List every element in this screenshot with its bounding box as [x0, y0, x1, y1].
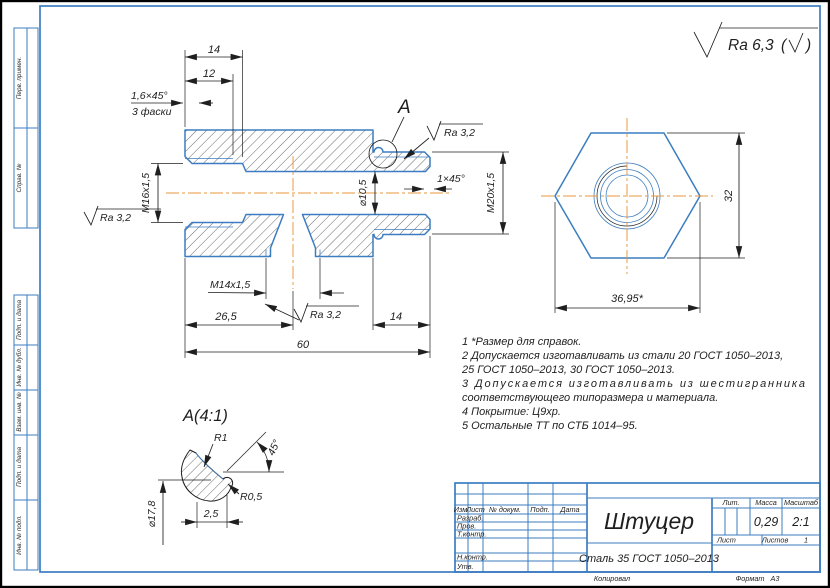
dim-chamfer-note: 3 фаски [132, 106, 172, 118]
copied-label: Копировал [594, 574, 630, 583]
roughness-value: Ra 3,2 [100, 212, 131, 224]
dim-leader [204, 444, 213, 467]
detail-hatch [181, 450, 232, 501]
hex-end-view: 36,95* 32 [541, 118, 745, 313]
roughness-check-icon [294, 303, 308, 322]
dim-angle: 45° [265, 438, 283, 457]
margin-label: Перв. примен. [16, 57, 23, 99]
col-data: Дата [559, 505, 579, 514]
section-hatch-upper [185, 130, 430, 172]
dim-across-corners: 36,95* [611, 293, 644, 305]
mass-value: 0,29 [754, 515, 778, 529]
sheet-border [1, 1, 829, 587]
drawing-sheet: Перв. примен. Справ. № Подп. и дата Инв.… [0, 0, 830, 588]
dim-total-len: 60 [297, 339, 310, 351]
detail-view-a: A(4:1) 45° R1 R0,5 2,5 ⌀17,8 [146, 407, 284, 545]
lit-label: Лит. [721, 498, 739, 507]
sheet-label: Лист [716, 536, 736, 545]
col-doc: № докум. [489, 505, 521, 514]
note-line: 4 Покрытие: Ц9хр. [462, 406, 561, 418]
margin-label: Справ. № [16, 163, 23, 192]
dim-thread-left: M16x1,5 [140, 173, 152, 213]
note-line: 3 Допускается изготавливать из шестигран… [462, 378, 805, 390]
col-podp: Подп. [530, 505, 549, 514]
roughness-check-icon [427, 121, 441, 140]
row-nkontr: Н.контр. [457, 553, 488, 562]
format-label: Формат [736, 574, 765, 583]
dim-radius-05: R0,5 [240, 491, 262, 503]
detail-callout-label: A [397, 97, 411, 118]
general-roughness-value: Ra 6,3 [728, 37, 774, 54]
dim-chamfer-right: 1×45° [437, 173, 465, 185]
sheets-label: Листов [761, 536, 789, 545]
dim-bore-dia: ⌀10,5 [357, 179, 369, 206]
dim-thread-right: M20x1,5 [485, 173, 497, 213]
margin-label: Взам. инв. № [16, 392, 23, 432]
margin-columns: Перв. примен. Справ. № Подп. и дата Инв.… [14, 28, 38, 570]
roughness-leader [265, 304, 299, 320]
roughness-check-icon [694, 22, 722, 57]
margin-label: Инв. № дубл. [15, 347, 23, 386]
paren-open: ( [781, 37, 788, 54]
sheets-value: 1 [804, 536, 808, 545]
roughness-flag-bottom: Ra 3,2 [265, 303, 359, 322]
drawing-canvas: Перв. примен. Справ. № Подп. и дата Инв.… [0, 0, 830, 588]
roughness-flag-left: Ra 3,2 [84, 206, 161, 225]
note-line: 5 Остальные ТТ по СТБ 1014–95. [462, 420, 638, 432]
row-utv: Утв. [456, 562, 474, 571]
dim-groove-width: 2,5 [203, 508, 219, 520]
detail-view-title: A(4:1) [182, 407, 228, 425]
roughness-check-icon [789, 33, 803, 52]
dim-thread-bottom: M14x1,5 [210, 279, 250, 291]
general-roughness: Ra 6,3 ( ) [694, 22, 818, 57]
chamfer-line [227, 432, 266, 471]
dim-thread-right-len: 14 [390, 311, 402, 323]
roughness-check-icon [84, 206, 98, 225]
section-hatch-lower-left [185, 215, 284, 257]
material: Сталь 35 ГОСТ 1050–2013 [579, 553, 720, 565]
paren-close: ) [804, 37, 811, 54]
note-line: соответствующего типоразмера и материала… [462, 392, 718, 404]
detail-callout-leader [392, 117, 404, 142]
note-line: 2 Допускается изготавливать из стали 20 … [461, 350, 783, 362]
roughness-value: Ra 3,2 [444, 127, 475, 139]
roughness-value: Ra 3,2 [310, 309, 341, 321]
margin-label: Подп. и дата [15, 447, 23, 487]
main-section-view: 14 12 1,6×45° 3 фаски M16x1,5 ⌀10,5 M20x… [84, 44, 509, 358]
dim-radius-1: R1 [214, 432, 227, 444]
note-line: 1 *Размер для справок. [462, 336, 581, 348]
part-name: Штуцер [604, 508, 694, 534]
scale-value: 2:1 [791, 515, 809, 529]
dim-chamfer: 1,6×45° [131, 90, 168, 102]
dim-hole-depth: 14 [208, 44, 220, 56]
technical-notes: 1 *Размер для справок. 2 Допускается изг… [461, 336, 805, 432]
dim-dia: ⌀17,8 [146, 500, 158, 527]
section-hatch-lower-right [303, 215, 431, 257]
format-value: А3 [770, 574, 780, 583]
mass-label: Масса [755, 498, 777, 507]
margin-label: Подп. и дата [15, 300, 23, 340]
row-tkontr: Т.контр. [457, 530, 486, 539]
dim-leader [208, 293, 266, 294]
dim-thread-depth: 12 [203, 68, 215, 80]
margin-label: Инв. № подл. [15, 515, 23, 555]
note-line: 25 ГОСТ 1050–2013, 30 ГОСТ 1050–2013. [461, 364, 675, 376]
dim-across-flats: 32 [723, 190, 735, 202]
title-block: Изм. Лист № докум. Подп. Дата Разраб. Пр… [454, 483, 820, 583]
scale-label: Масштаб [784, 498, 819, 507]
dim-hole-position: 26,5 [214, 311, 237, 323]
hexagon-outline [555, 133, 700, 258]
